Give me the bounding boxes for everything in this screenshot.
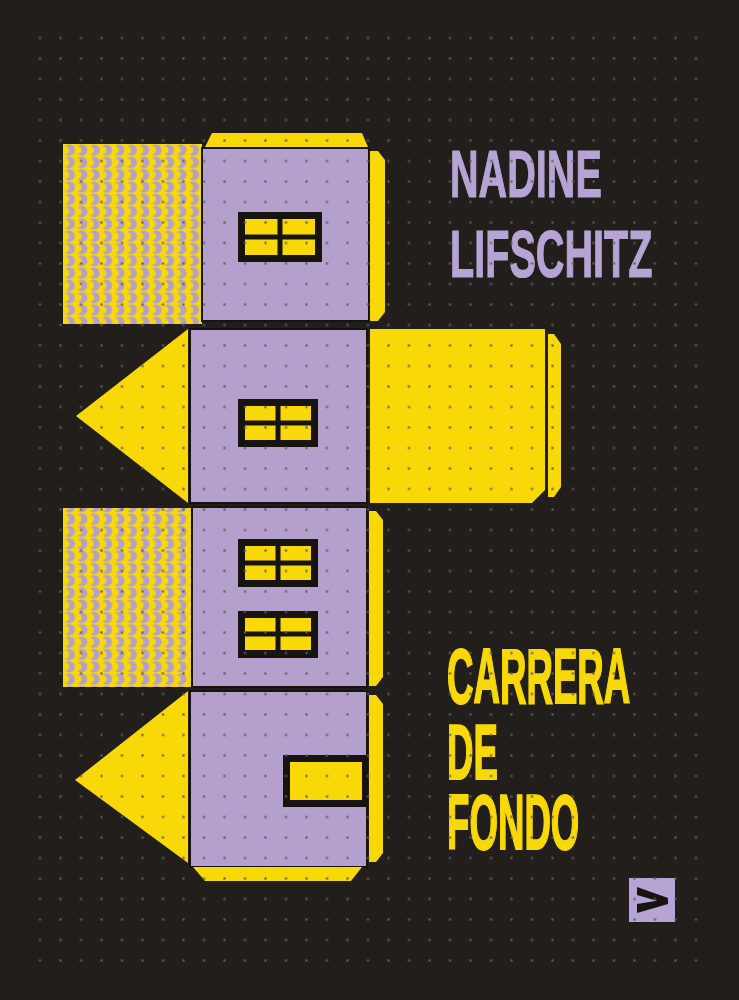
book-title-line-1: CARRERA [447, 637, 630, 715]
book-cover: NADINE LIFSCHITZ CARRERA DE FONDO [0, 0, 739, 1000]
book-title-line-3: FONDO [447, 783, 579, 861]
cover-text: NADINE LIFSCHITZ CARRERA DE FONDO [0, 0, 739, 1000]
author-name-line-1: NADINE [450, 141, 602, 207]
author-name-line-2: LIFSCHITZ [450, 221, 652, 287]
